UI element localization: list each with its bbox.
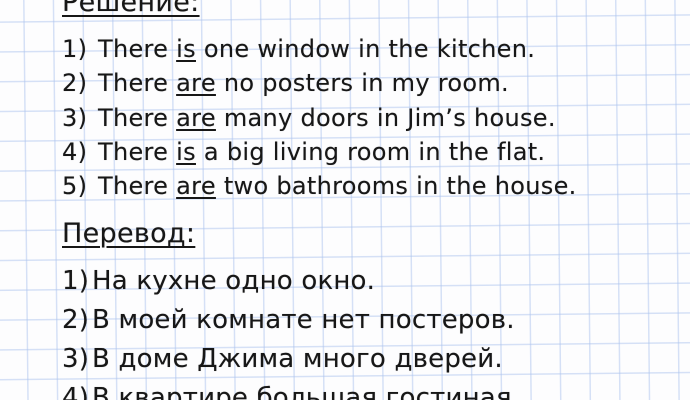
- sentence-before: There: [98, 172, 176, 200]
- sentence-after: no posters in my room.: [216, 69, 509, 97]
- sentence: В квартире большая гостиная: [92, 383, 512, 400]
- translation-list: 1) На кухне одно окно. 2) В моей комнате…: [62, 266, 515, 400]
- sentence-after: many doors in Jim’s house.: [216, 104, 556, 132]
- underlined-verb: are: [176, 172, 216, 200]
- sentence: В моей комнате нет постеров.: [92, 305, 515, 335]
- sentence: There is a big living room in the flat.: [98, 138, 545, 166]
- solution-item: 4) There is a big living room in the fla…: [62, 138, 577, 172]
- worksheet-content: Решение: 1) There is one window in the k…: [0, 0, 690, 400]
- sentence: В доме Джима много дверей.: [92, 344, 503, 374]
- translation-item: 2) В моей комнате нет постеров.: [62, 305, 515, 344]
- sentence-after: one window in the kitchen.: [196, 35, 535, 63]
- solution-list: 1) There is one window in the kitchen. 2…: [62, 35, 577, 206]
- item-number: 4): [62, 138, 98, 166]
- underlined-verb: is: [176, 35, 196, 63]
- sentence: There are two bathrooms in the house.: [98, 172, 577, 200]
- sentence-after: two bathrooms in the house.: [216, 172, 577, 200]
- solution-item: 2) There are no posters in my room.: [62, 69, 577, 103]
- sentence: There are many doors in Jim’s house.: [98, 104, 556, 132]
- sentence: There is one window in the kitchen.: [98, 35, 535, 63]
- item-number: 3): [62, 104, 98, 132]
- underlined-verb: is: [176, 138, 196, 166]
- item-number: 4): [62, 383, 92, 400]
- underlined-verb: are: [176, 104, 216, 132]
- translation-item: 4) В квартире большая гостиная: [62, 383, 515, 400]
- item-number: 1): [62, 35, 98, 63]
- solution-item: 1) There is one window in the kitchen.: [62, 35, 577, 69]
- translation-item: 3) В доме Джима много дверей.: [62, 344, 515, 383]
- sentence-before: There: [98, 104, 176, 132]
- underlined-verb: are: [176, 69, 216, 97]
- item-number: 2): [62, 69, 98, 97]
- item-number: 1): [62, 266, 92, 296]
- item-number: 5): [62, 172, 98, 200]
- translation-item: 1) На кухне одно окно.: [62, 266, 515, 305]
- sentence-before: There: [98, 69, 176, 97]
- sentence-before: There: [98, 138, 176, 166]
- sentence: На кухне одно окно.: [92, 266, 375, 296]
- sentence-after: a big living room in the flat.: [196, 138, 545, 166]
- translation-heading: Перевод:: [62, 218, 195, 249]
- item-number: 2): [62, 305, 92, 335]
- sentence: There are no posters in my room.: [98, 69, 509, 97]
- item-number: 3): [62, 344, 92, 374]
- solution-heading: Решение:: [62, 0, 200, 18]
- worksheet-page: Решение: 1) There is one window in the k…: [0, 0, 690, 400]
- solution-item: 3) There are many doors in Jim’s house.: [62, 104, 577, 138]
- solution-item: 5) There are two bathrooms in the house.: [62, 172, 577, 206]
- sentence-before: There: [98, 35, 176, 63]
